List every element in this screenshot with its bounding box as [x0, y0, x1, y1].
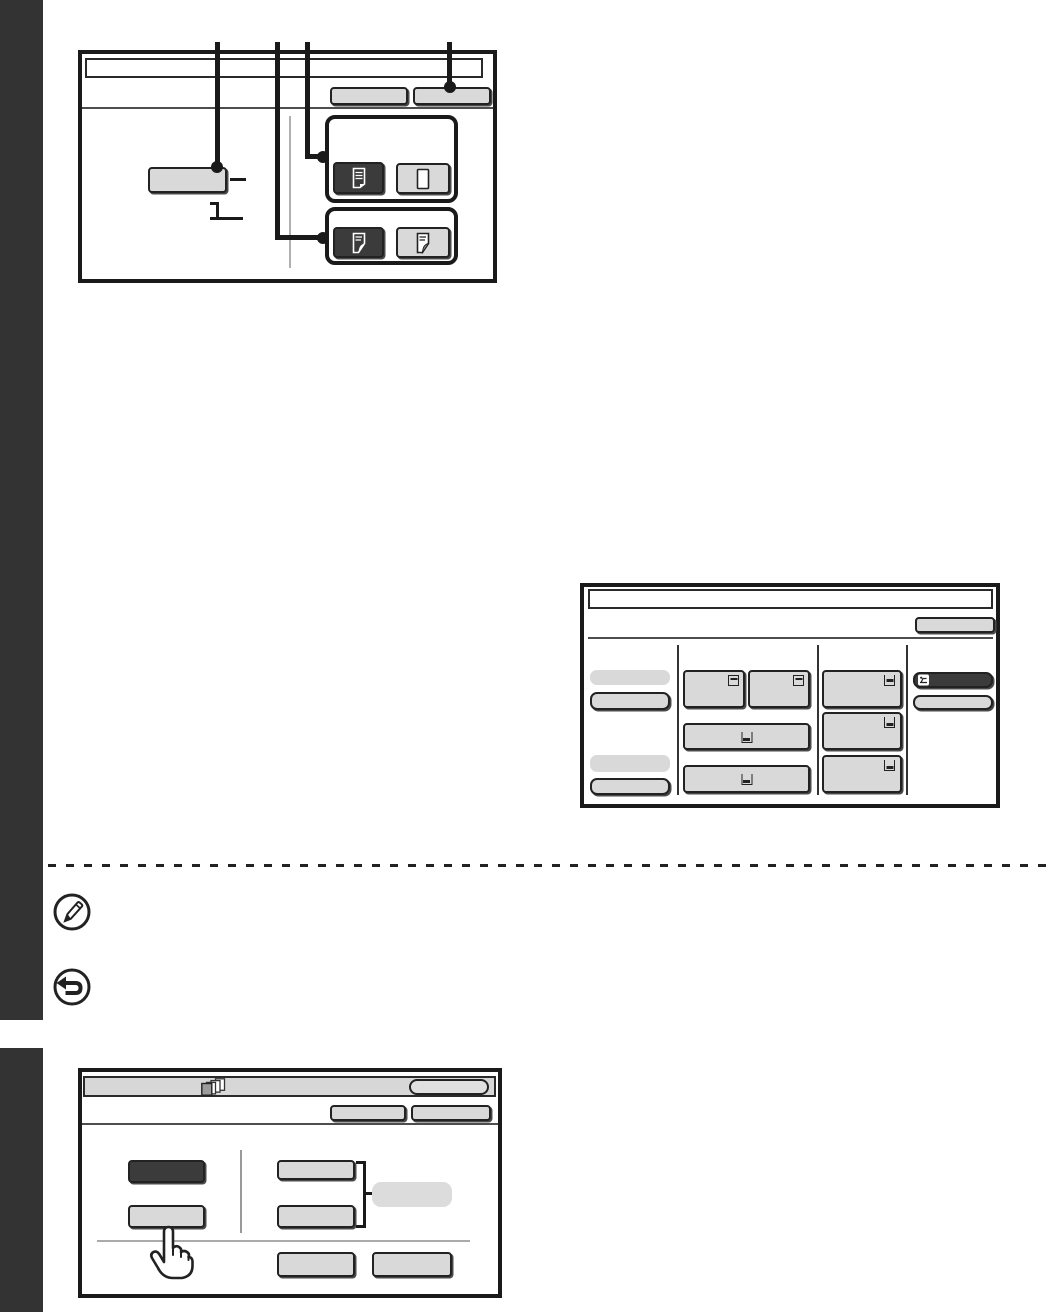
output-1sided-button[interactable] — [396, 227, 450, 258]
bottom-button-2[interactable] — [372, 1252, 452, 1277]
special-modes-panel — [78, 1068, 502, 1298]
callout-line-3-vertical — [305, 42, 310, 159]
column-divider-1 — [677, 645, 679, 795]
duplex-select-panel — [78, 50, 497, 283]
callout-dot-1 — [211, 161, 223, 173]
tray-button-6[interactable] — [822, 712, 902, 750]
callout-dot-2 — [317, 232, 329, 244]
column-divider-3 — [906, 645, 908, 795]
tray-button-2[interactable] — [748, 670, 810, 708]
connector-elbow-bottom — [210, 217, 243, 220]
tray-level-icon — [741, 774, 752, 785]
bracket-arm-bottom — [356, 1225, 366, 1228]
header-divider — [588, 637, 993, 639]
paper-select-panel — [580, 583, 1000, 808]
bracket-stub — [363, 1192, 372, 1195]
section-separator — [48, 864, 1054, 867]
panel-title-bar — [83, 1076, 496, 1097]
header-button-1[interactable] — [330, 87, 408, 105]
callout-line-2-vertical — [275, 42, 280, 240]
tray-level-icon — [884, 760, 895, 771]
output-2sided-button[interactable] — [333, 227, 384, 258]
column-divider — [289, 116, 291, 268]
extra-paper-button[interactable] — [913, 695, 993, 710]
header-button-1[interactable] — [330, 1105, 406, 1121]
original-1sided-button[interactable] — [396, 163, 450, 194]
connector-dash — [230, 178, 246, 181]
titlebar-button[interactable] — [409, 1079, 489, 1095]
sidebar-band-bottom — [0, 1048, 43, 1312]
bypass-tray-icon — [918, 675, 929, 686]
paper-type-label-2 — [590, 755, 670, 772]
callout-dot-3 — [317, 151, 329, 163]
tray-button-1[interactable] — [683, 670, 745, 708]
option-button-1[interactable] — [277, 1160, 355, 1180]
callout-line-2-horizontal — [275, 235, 321, 240]
panel-title-bar — [85, 58, 483, 78]
column-divider — [240, 1150, 242, 1233]
blank-document-icon — [413, 167, 433, 191]
document-with-lines-icon — [349, 166, 369, 190]
callout-dot-4 — [444, 81, 456, 93]
bracket-target-button[interactable] — [372, 1182, 452, 1207]
bottom-button-1[interactable] — [277, 1252, 355, 1277]
touch-hand-icon — [146, 1224, 200, 1282]
column-divider-2 — [817, 645, 819, 795]
two-sided-document-icon — [349, 231, 369, 255]
tray-level-icon — [741, 732, 752, 743]
tray-button-3[interactable] — [683, 723, 810, 750]
paper-type-label-1 — [590, 670, 670, 685]
paper-type-button-1[interactable] — [590, 692, 670, 710]
header-divider — [82, 1123, 498, 1125]
mode-button-selected[interactable] — [128, 1160, 205, 1183]
paper-type-button-2[interactable] — [590, 778, 670, 795]
page-stack-icon — [201, 1078, 227, 1096]
original-2sided-button[interactable] — [333, 162, 384, 194]
tray-button-4[interactable] — [683, 765, 810, 793]
tray-button-7[interactable] — [822, 755, 902, 793]
two-sided-document-icon — [413, 231, 433, 255]
note-pencil-icon — [52, 892, 92, 932]
bypass-tray-button[interactable] — [913, 672, 993, 688]
option-button-2[interactable] — [277, 1205, 355, 1228]
ok-button[interactable] — [915, 617, 995, 633]
tray-level-icon — [793, 675, 804, 686]
callout-line-1 — [215, 42, 220, 167]
header-divider — [82, 107, 493, 109]
panel-title-bar — [588, 589, 993, 609]
manual-page — [0, 0, 1054, 1312]
back-arrow-icon — [52, 967, 92, 1007]
bracket-arm-top — [356, 1161, 366, 1164]
tray-level-icon — [728, 675, 739, 686]
tray-button-5[interactable] — [822, 670, 902, 708]
tray-level-icon — [884, 675, 895, 686]
tray-level-icon — [884, 717, 895, 728]
header-button-2[interactable] — [411, 1105, 491, 1121]
sidebar-band-top — [0, 0, 43, 1020]
